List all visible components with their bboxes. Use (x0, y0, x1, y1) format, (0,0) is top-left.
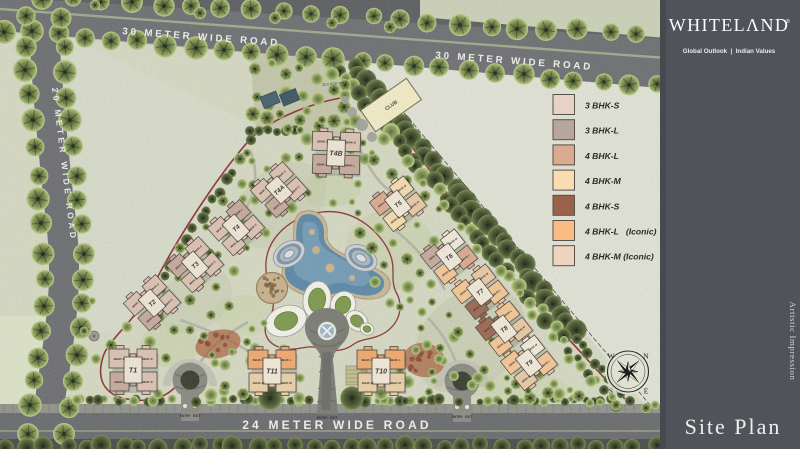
svg-text:4 BHK-M (Iconic): 4 BHK-M (Iconic) (584, 252, 654, 262)
svg-text:3 BHK-S: 3 BHK-S (585, 101, 620, 111)
svg-text:4 BHK-L (Iconic): 4 BHK-L (Iconic) (584, 227, 657, 237)
svg-text:W: W (607, 352, 615, 361)
svg-text:S: S (609, 387, 613, 396)
svg-text:Global Outlook | Indian Valu: Global Outlook | Indian Values (683, 48, 776, 55)
svg-text:WHITELΛND: WHITELΛND (669, 15, 790, 35)
svg-text:4 BHK-L: 4 BHK-L (584, 151, 619, 161)
svg-text:3 BHK-L: 3 BHK-L (585, 126, 619, 136)
svg-text:4 BHK-M: 4 BHK-M (584, 176, 622, 186)
svg-text:4 BHK-S: 4 BHK-S (584, 201, 620, 211)
svg-text:N: N (643, 352, 649, 361)
svg-text:Site Plan: Site Plan (685, 414, 782, 439)
svg-text:Artistic Impression: Artistic Impression (788, 301, 798, 380)
svg-text:E: E (644, 387, 649, 396)
svg-text:®: ® (786, 18, 790, 25)
